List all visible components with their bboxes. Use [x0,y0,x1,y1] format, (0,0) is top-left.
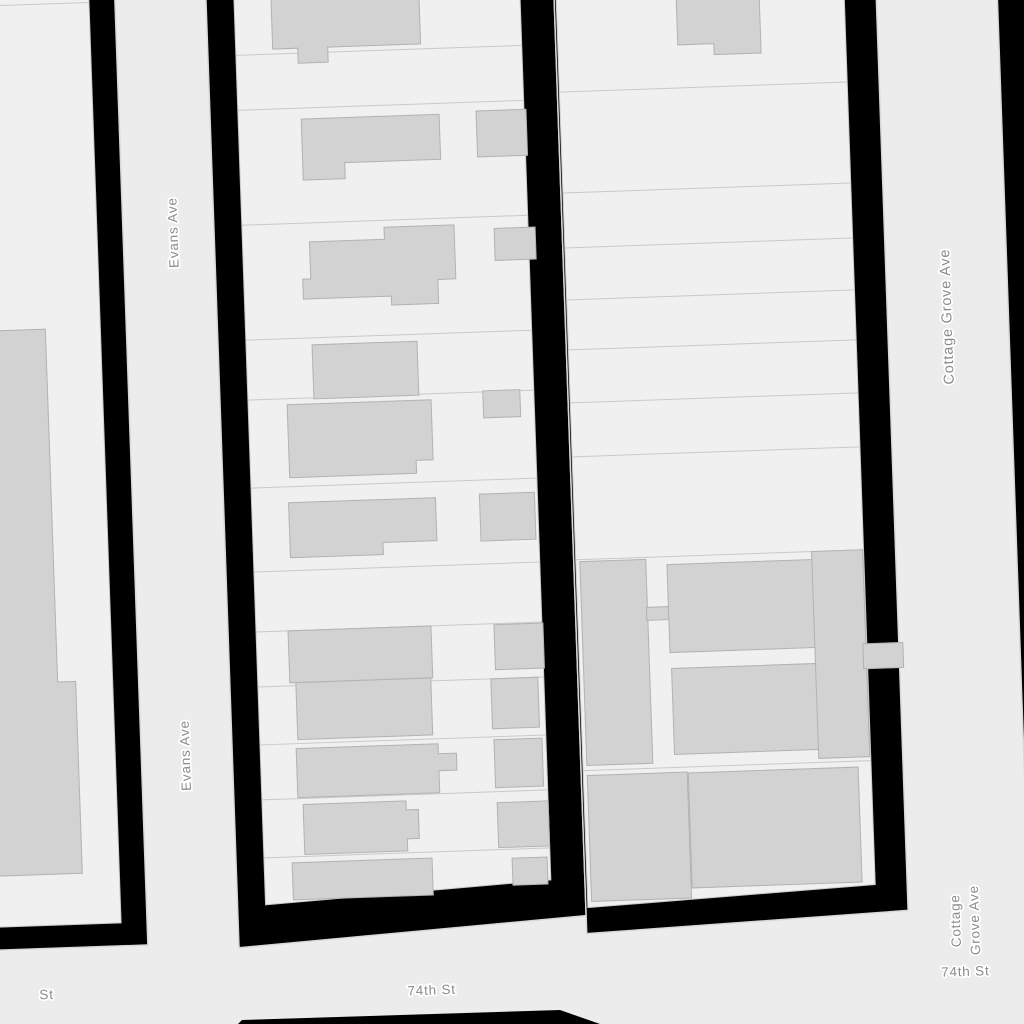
building-footprint[interactable] [312,341,419,399]
street-label-evans-ave: Evans Ave [177,720,194,791]
building-footprint[interactable] [688,767,862,888]
street-label-74th-st: 74th St [407,982,456,999]
garage-footprint[interactable] [494,623,545,670]
garage-footprint[interactable] [512,857,548,885]
building-footprint[interactable] [580,559,653,765]
building-footprint[interactable] [863,642,904,668]
map-canvas[interactable]: Evans Ave Evans Ave Cottage Grove Ave Co… [0,0,1024,1024]
garage-footprint[interactable] [497,801,550,848]
building-footprint[interactable] [587,772,691,901]
building-footprint[interactable] [303,800,420,854]
street-label-evans-ave: Evans Ave [164,197,181,268]
building-footprint[interactable] [672,663,821,754]
garage-footprint[interactable] [479,492,536,541]
street-label-cottage-grove-ave-line2: Grove Ave [966,885,983,955]
street-label-partial-st: St [39,987,54,1002]
garage-footprint[interactable] [491,677,540,729]
building-footprint[interactable] [292,858,433,900]
building-footprint[interactable] [296,678,433,740]
garage-footprint[interactable] [494,227,536,260]
map-viewport[interactable]: Evans Ave Evans Ave Cottage Grove Ave Co… [0,0,1024,1024]
garage-footprint[interactable] [476,109,528,157]
building-footprint[interactable] [288,626,433,683]
street-label-74th-st: 74th St [941,963,990,980]
city-block-middle[interactable] [205,0,587,948]
garage-footprint[interactable] [494,738,544,788]
building-footprint[interactable] [667,559,817,652]
street-label-cottage-grove-ave-line1: Cottage [947,894,964,947]
building-footprint[interactable] [812,550,870,759]
city-block-east[interactable] [553,0,913,934]
garage-footprint[interactable] [483,390,521,418]
building-footprint[interactable] [287,400,433,478]
building-footprint[interactable] [646,607,669,621]
building-footprint[interactable] [296,743,458,798]
